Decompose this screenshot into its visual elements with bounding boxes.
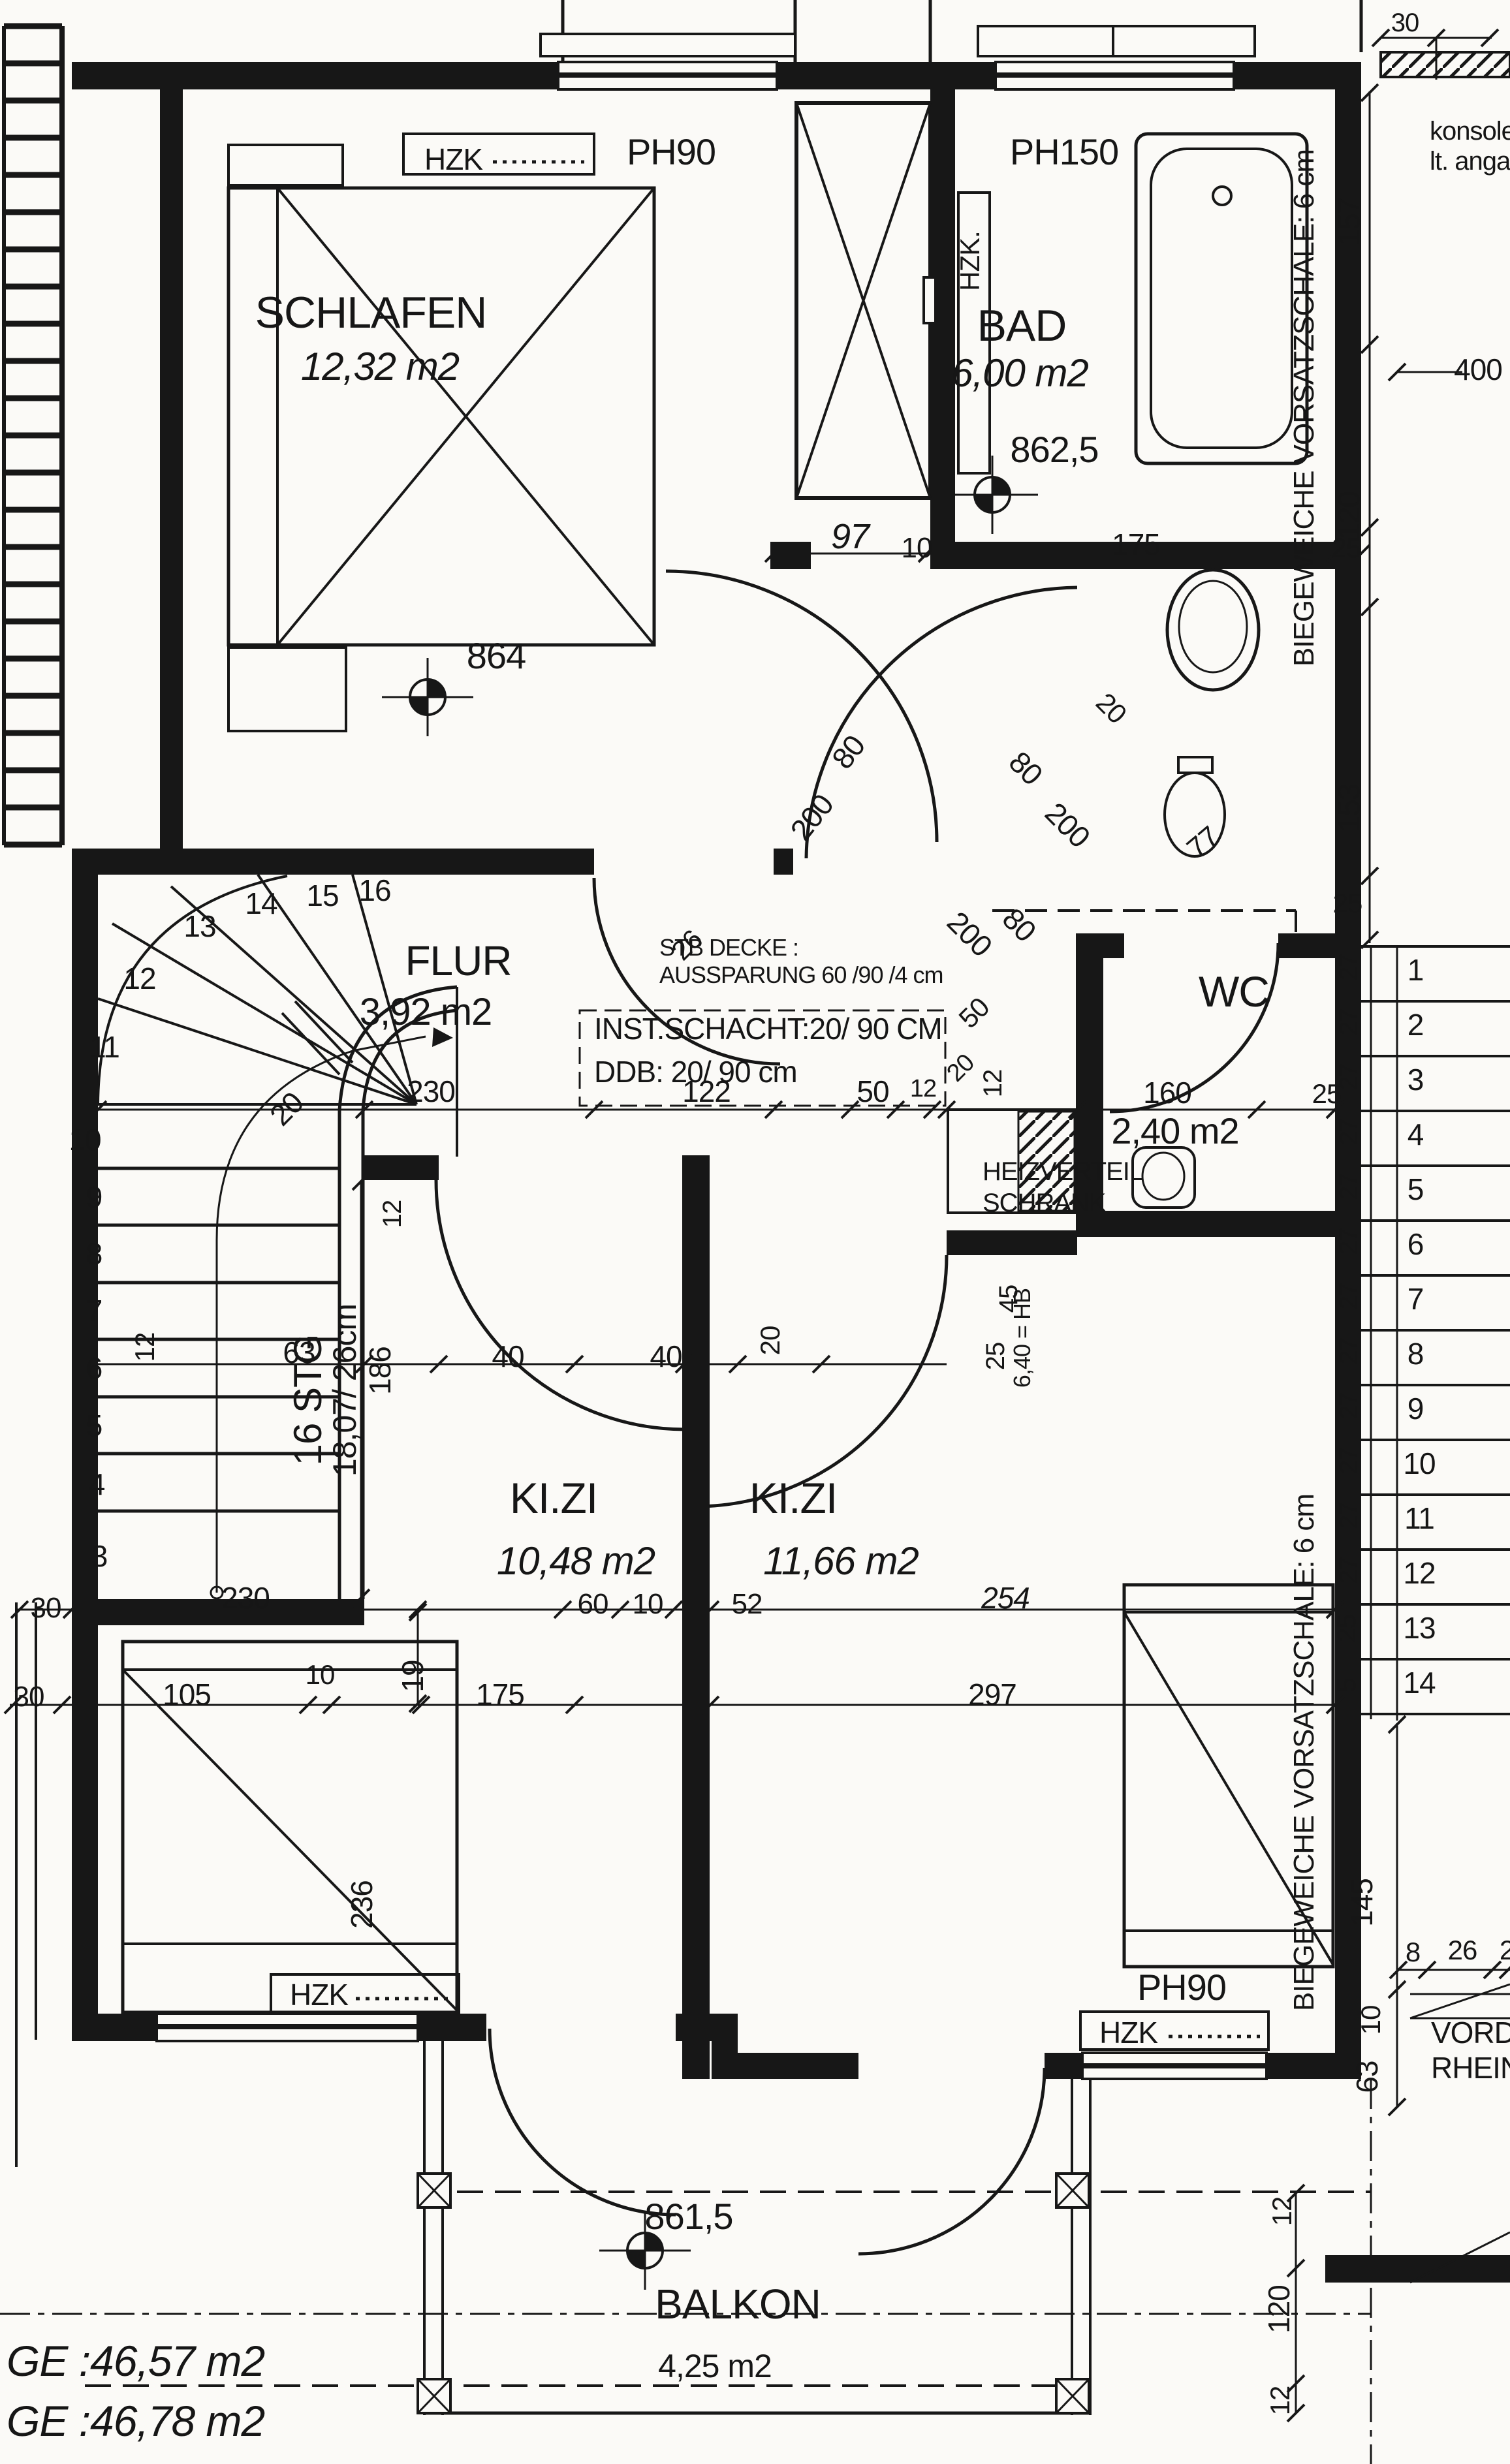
note-vorsatz-bad: BIEGEWEICHE VORSATZSCHALE: 6 cm	[1288, 149, 1320, 666]
stair-step-right-1: 1	[1408, 953, 1424, 987]
dim-20-stair-diag: 20	[263, 1085, 310, 1132]
room-label-wc: WC	[1199, 967, 1269, 1016]
dim-120-balkon: 120	[1262, 2285, 1296, 2333]
tread-27-12: 27	[1335, 1557, 1362, 1583]
dim-52: 52	[732, 1588, 763, 1620]
tread-27-3: 27	[1335, 1064, 1362, 1090]
dim-63-bottom-right: 63	[1350, 2061, 1384, 2093]
note-vordach-line1: VORDACH	[1431, 2016, 1510, 2050]
radiator-label-bad: HZK.	[954, 231, 985, 291]
stair-step-right-7: 7	[1408, 1282, 1424, 1316]
dim-12-flur: 12	[910, 1075, 936, 1102]
dim-77: 77	[1181, 820, 1225, 865]
dim-254: 254	[981, 1581, 1030, 1615]
room-area-balkon: 4,25 m2	[658, 2348, 772, 2384]
stair-note-dims: 18,07/ 26cm	[326, 1304, 363, 1476]
room-label-bad: BAD	[977, 301, 1067, 351]
stair-step-left-13: 13	[183, 909, 215, 943]
room-area-kizi-left: 10,48 m2	[497, 1539, 655, 1583]
stair-step-right-8: 8	[1408, 1337, 1424, 1371]
door-dim-80-b: 80	[1003, 745, 1050, 792]
note-hb: 6,40 = HB	[1009, 1288, 1035, 1388]
note-konsole-line1: konsole :	[1430, 117, 1510, 146]
dim-297: 297	[968, 1677, 1016, 1711]
tread-27-2: 27	[1335, 1009, 1362, 1035]
note-inst: INST.SCHACHT:20/ 90 CM	[594, 1012, 942, 1046]
note-vorsatz-kizi: BIEGEWEICHE VORSATZSCHALE: 6 cm	[1288, 1494, 1320, 2011]
room-label-kizi-right: KI.ZI	[749, 1474, 837, 1522]
konsole-hatch-strip	[1381, 52, 1510, 77]
radiator-label-kizi-right: HZK	[1099, 2016, 1158, 2050]
door-arc-balkon-right	[858, 2068, 1045, 2254]
dim-25-bad: 25	[1332, 533, 1361, 563]
stair-step-right-2: 2	[1408, 1008, 1424, 1042]
stair-step-right-12: 12	[1403, 1556, 1435, 1590]
door-arc-balkon-left	[490, 2029, 676, 2215]
stair-step-left-14: 14	[245, 886, 277, 920]
dim-40-b: 40	[650, 1339, 682, 1373]
door-dim-200-c: 200	[941, 905, 999, 963]
dim-30-row2: 30	[14, 1681, 44, 1713]
room-label-kizi-left: KI.ZI	[510, 1474, 597, 1522]
stair-step-left-6: 6	[86, 1351, 102, 1385]
dim-186: 186	[363, 1347, 397, 1395]
window-label-ph90-top: PH90	[627, 131, 716, 172]
tread-27-7: 27	[1335, 1283, 1362, 1309]
radiator-label-schlafen: HZK	[424, 142, 483, 176]
dim-400: 400	[1454, 352, 1502, 386]
stair-step-left-7: 7	[86, 1294, 102, 1328]
note-stb-line2: AUSSPARUNG 60 /90 /4 cm	[659, 961, 943, 988]
level-value-bad: 862,5	[1010, 429, 1098, 470]
level-value-balkon: 861,5	[644, 2196, 732, 2237]
dim-25-steps: 25	[1332, 1615, 1361, 1643]
dim-19: 19	[396, 1660, 430, 1692]
note-konsole-line2: lt. angabe	[1430, 147, 1510, 176]
door-arc-mid	[806, 587, 1077, 858]
dim-12-shaft: 12	[979, 1070, 1007, 1098]
stair-step-left-11: 11	[89, 1030, 119, 1064]
dim-230-row1: 230	[221, 1581, 270, 1615]
dim-122: 122	[682, 1074, 731, 1108]
stair-step-left-16: 16	[358, 873, 390, 907]
dim-8: 8	[1406, 1937, 1420, 1967]
stair-step-right-10: 10	[1403, 1446, 1435, 1480]
dim-30-top-right: 30	[1391, 8, 1419, 37]
note-heiz-line2: SCHRANK	[983, 1189, 1107, 1217]
stair-step-right-13: 13	[1403, 1611, 1435, 1645]
dim-63-left: 63	[283, 1335, 315, 1369]
tread-27-6: 27	[1335, 1228, 1362, 1255]
dim-2: 2	[1500, 1935, 1510, 1965]
tread-27-5: 27	[1335, 1174, 1362, 1200]
tread-27-8: 27	[1335, 1338, 1362, 1364]
stair-step-right-5: 5	[1408, 1172, 1424, 1206]
tread-27-10: 27	[1335, 1448, 1362, 1474]
dim-26-bottom: 26	[1448, 1935, 1477, 1965]
dim-25-shaft: 25	[981, 1343, 1010, 1371]
dim-40-a: 40	[492, 1339, 524, 1373]
room-area-bad: 6,00 m2	[951, 351, 1088, 395]
tread-27-4: 27	[1335, 1119, 1362, 1145]
dim-10-bottom-right: 10	[1355, 2006, 1386, 2035]
dim-175-row2: 175	[476, 1677, 524, 1711]
floor-plan-canvas: 30konsole :lt. angabeHZKPH90PH150HZK.157…	[0, 0, 1510, 2464]
stair-step-right-4: 4	[1408, 1117, 1424, 1151]
room-label-balkon: BALKON	[655, 2281, 821, 2328]
walls-layer	[16, 0, 1510, 2283]
window-label-ph150: PH150	[1010, 131, 1118, 172]
dim-153-right: 153	[1332, 784, 1366, 832]
bathtub	[1136, 134, 1307, 463]
stair-step-left-3: 3	[91, 1539, 108, 1573]
stair-step-right-11: 11	[1404, 1501, 1434, 1535]
stair-step-left-8: 8	[86, 1237, 102, 1271]
stair-step-left-12: 12	[123, 961, 155, 995]
door-arc-bad	[666, 571, 937, 842]
dim-20-diag-flur: 20	[941, 1049, 979, 1087]
neighbor-wall-hatch	[4, 26, 62, 845]
washbasin	[1167, 570, 1259, 690]
dim-30-row1: 30	[31, 1592, 61, 1624]
door-dim-200-a: 200	[783, 788, 840, 847]
dim-25-right: 25	[1333, 888, 1362, 918]
dim-160-wc: 160	[1143, 1076, 1191, 1110]
stair-step-right-14: 14	[1403, 1666, 1436, 1700]
dim-12-balkon-bottom: 12	[1265, 2386, 1295, 2416]
dim-145: 145	[1345, 1879, 1379, 1927]
note-heiz-line1: HEIZVERTEIL	[983, 1157, 1143, 1186]
dim-5-steps: 5	[1332, 1678, 1361, 1692]
dim-12-stairwall: 12	[378, 1200, 407, 1228]
dim-10-row2: 10	[306, 1659, 335, 1690]
room-label-flur: FLUR	[405, 937, 511, 984]
stair-step-right-9: 9	[1408, 1392, 1424, 1426]
bed-schlafen	[228, 145, 654, 731]
dim-50-flur: 50	[857, 1074, 889, 1108]
dim-10-bad: 10	[902, 532, 932, 564]
stair-step-left-5: 5	[86, 1409, 102, 1443]
room-area-flur: 3,92 m2	[360, 991, 492, 1033]
door-dim-50: 50	[952, 991, 995, 1034]
level-marker-schlafen	[382, 658, 473, 736]
radiator-label-kizi-left: HZK	[290, 1978, 349, 2012]
level-value-schlafen: 864	[467, 635, 526, 676]
room-area-kizi-right: 11,66 m2	[763, 1539, 919, 1583]
dim-157: 157	[1332, 198, 1366, 246]
tread-27-11: 27	[1335, 1503, 1362, 1529]
door-dim-80-a: 80	[825, 729, 872, 775]
dim-60: 60	[578, 1588, 608, 1620]
floor-plan-page: 30konsole :lt. angabeHZKPH90PH150HZK.157…	[0, 0, 1510, 2464]
room-area-wc: 2,40 m2	[1111, 1110, 1238, 1151]
note-vordach-line2: RHEINZ	[1431, 2051, 1510, 2085]
door-dim-200-b: 200	[1039, 796, 1097, 854]
stair-step-left-9: 9	[86, 1180, 102, 1214]
dim-12-left: 12	[129, 1333, 160, 1362]
dim-230-flur: 230	[407, 1074, 455, 1108]
door-dim-80-c: 80	[996, 901, 1043, 948]
stair-step-left-15: 15	[306, 879, 338, 912]
dim-236: 236	[345, 1880, 379, 1929]
tread-27-9: 27	[1335, 1393, 1362, 1419]
dim-20-divider: 20	[755, 1326, 785, 1356]
total-area-line2: GE :46,78 m2	[7, 2397, 265, 2445]
stair-step-right-6: 6	[1408, 1227, 1424, 1261]
door-arc-kizi-right	[695, 1255, 947, 1506]
dim-97: 97	[831, 517, 871, 556]
stair-step-left-10: 10	[69, 1123, 101, 1157]
stair-step-right-3: 3	[1408, 1063, 1424, 1097]
door-arc-kizi-left	[436, 1180, 685, 1429]
total-area-line1: GE :46,57 m2	[7, 2337, 265, 2385]
dim-175-bad: 175	[1112, 527, 1160, 561]
dim-12-balkon-top: 12	[1266, 2197, 1297, 2226]
window-label-ph90-bottom: PH90	[1137, 1967, 1226, 2008]
stair-walk-line	[217, 1037, 426, 1593]
room-label-schlafen: SCHLAFEN	[255, 288, 487, 337]
wardrobe-x-box	[796, 103, 936, 498]
room-area-schlafen: 12,32 m2	[301, 345, 460, 388]
dim-10-row1: 10	[633, 1588, 663, 1620]
dim-105: 105	[163, 1677, 211, 1711]
door-dim-20-b: 20	[1090, 687, 1133, 729]
stair-step-left-4: 4	[89, 1467, 105, 1501]
tread-27-1: 27	[1335, 954, 1362, 980]
